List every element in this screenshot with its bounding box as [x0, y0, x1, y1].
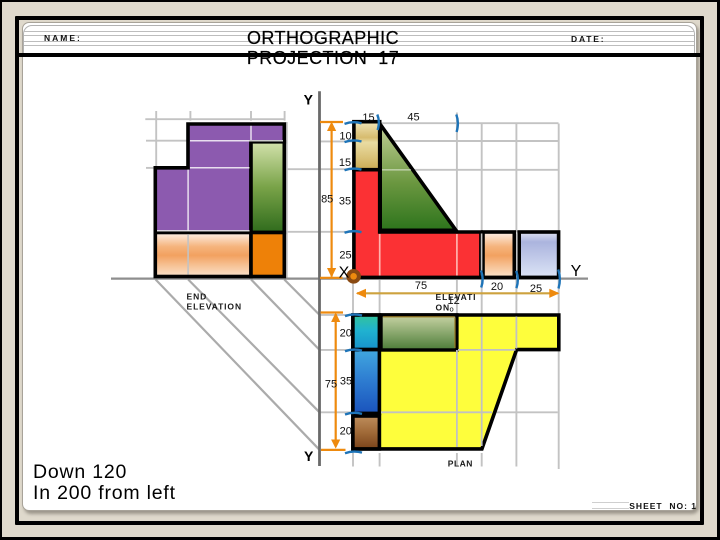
svg-text:25: 25 [530, 283, 542, 295]
svg-text:10: 10 [339, 131, 351, 143]
svg-text:ELEVATION: ELEVATION [187, 302, 242, 312]
svg-text:o: o [450, 305, 454, 314]
svg-text:20: 20 [340, 328, 352, 340]
svg-text:45: 45 [407, 112, 419, 124]
svg-text:END: END [187, 291, 208, 301]
svg-text:25: 25 [339, 250, 351, 262]
svg-text:35: 35 [340, 376, 352, 388]
svg-text:75: 75 [325, 379, 337, 391]
svg-text:35: 35 [339, 196, 351, 208]
svg-text:X: X [339, 265, 350, 282]
svg-text:75: 75 [415, 280, 427, 292]
svg-text:20: 20 [340, 426, 352, 438]
svg-text:15: 15 [339, 157, 351, 169]
svg-text:ON: ON [436, 302, 451, 312]
svg-text:PLAN: PLAN [448, 459, 473, 469]
svg-text:85: 85 [321, 193, 333, 205]
svg-text:15: 15 [362, 112, 374, 124]
svg-text:Y: Y [304, 91, 314, 107]
svg-text:Y: Y [571, 263, 582, 280]
svg-text:Y: Y [304, 448, 314, 464]
svg-text:20: 20 [491, 281, 503, 293]
svg-text:ELEVATI: ELEVATI [436, 292, 477, 302]
